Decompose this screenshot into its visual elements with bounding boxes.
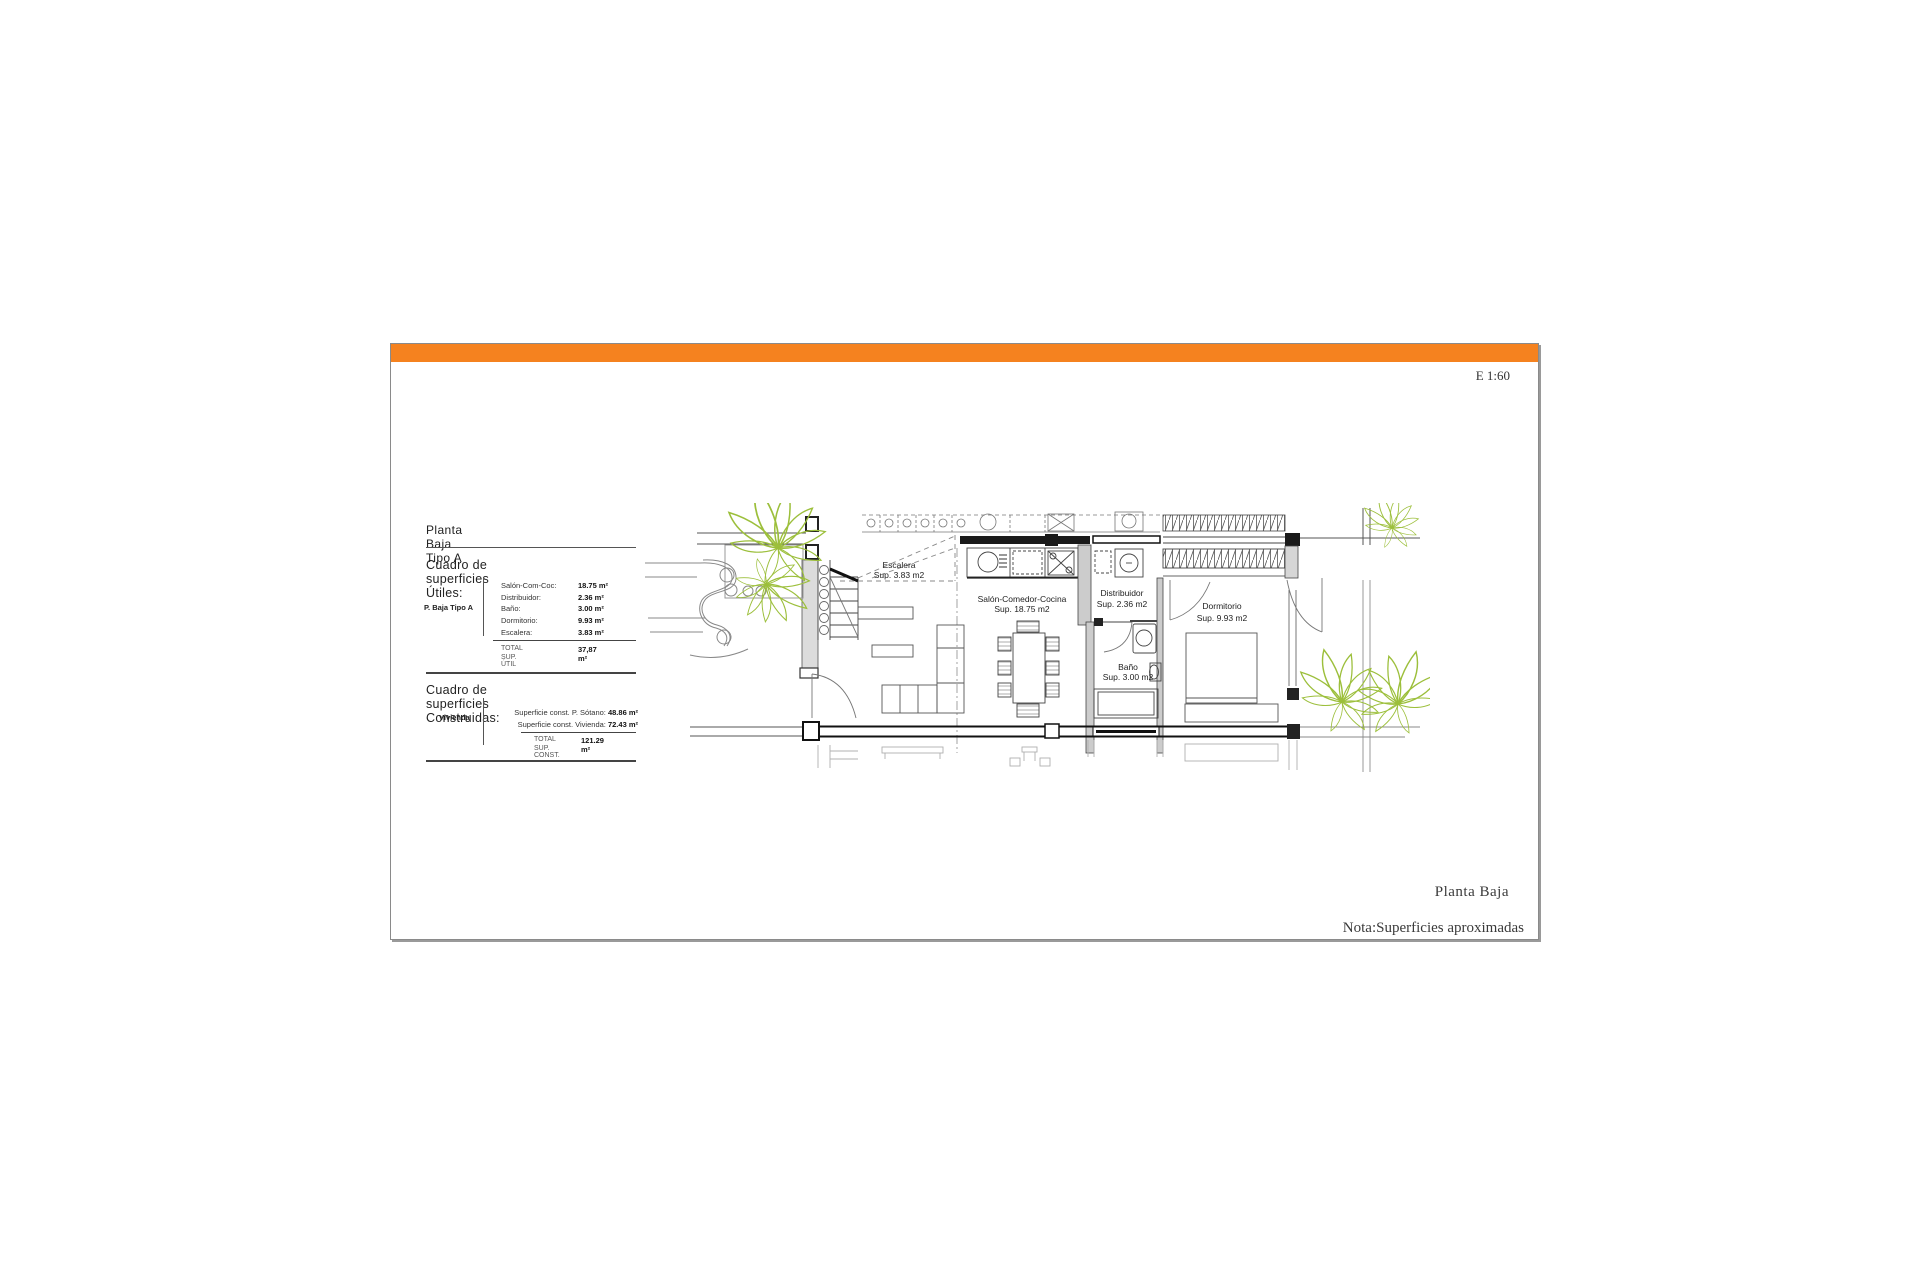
divider — [426, 672, 636, 674]
staircase — [818, 560, 858, 640]
bottom-wall — [690, 722, 1420, 740]
door-swings — [812, 578, 1322, 718]
total-value: 121.29 m² — [581, 736, 604, 754]
room-sup-escalera: Sup. 3.83 m2 — [874, 570, 925, 580]
table-rule — [483, 698, 484, 745]
kitchen-counter — [967, 548, 1285, 578]
bedroom-furniture — [1185, 633, 1278, 722]
table-row: Distribuidor:2.36 m² — [501, 593, 541, 602]
page-canvas: E 1:60 Planta Baja Tipo A Cuadro de supe… — [0, 0, 1920, 1280]
total-rule — [493, 640, 636, 641]
dining-set — [998, 621, 1059, 717]
room-label-escalera: Escalera — [882, 560, 915, 570]
floor-plan-drawing: Escalera Sup. 3.83 m2 Salón-Comedor-Coci… — [640, 503, 1430, 803]
room-sup-salon: Sup. 18.75 m2 — [994, 604, 1050, 614]
table-row: Salón-Com-Coc:18.75 m² — [501, 581, 556, 590]
room-sup-bano: Sup. 3.00 m2 — [1103, 672, 1154, 682]
mirrored-unit-below — [818, 740, 1297, 770]
table-row: Superficie const. P. Sótano: 48.86 m² — [491, 708, 638, 717]
room-label-salon: Salón-Comedor-Cocina — [978, 594, 1067, 604]
total-rule — [521, 732, 636, 733]
total-label: TOTAL — [534, 736, 556, 743]
total-label: TOTAL — [501, 645, 523, 652]
table-row: Superficie const. Vivienda: 72.43 m² — [491, 720, 638, 729]
room-sup-dormitorio: Sup. 9.93 m2 — [1197, 613, 1248, 623]
total-value: 37,87 m² — [578, 645, 597, 663]
table-row: Dormitorio:9.93 m² — [501, 616, 538, 625]
living-room-furniture — [858, 607, 964, 713]
table-rule — [483, 579, 484, 636]
neighbour-unit-band — [862, 512, 1285, 532]
footer-note: Nota:Superficies aproximadas — [1343, 920, 1524, 937]
total-label: SUP. ÚTIL — [501, 654, 516, 668]
orange-header-bar — [391, 344, 1538, 362]
room-label-bano: Baño — [1118, 662, 1138, 672]
scale-label: E 1:60 — [1476, 368, 1510, 384]
table-row: Baño:3.00 m² — [501, 604, 521, 613]
construidas-row-label: Vivienda — [439, 713, 470, 722]
divider — [426, 760, 636, 762]
room-sup-distribuidor: Sup. 2.36 m2 — [1097, 599, 1148, 609]
utiles-heading: Cuadro de superficies Útiles: — [426, 558, 489, 600]
divider — [426, 547, 636, 548]
footer-plan-name: Planta Baja — [1435, 884, 1509, 901]
utiles-row-label: P. Baja Tipo A — [424, 603, 480, 612]
total-label: SUP. CONST. — [534, 745, 560, 759]
room-label-distribuidor: Distribuidor — [1101, 588, 1144, 598]
table-row: Escalera:3.83 m² — [501, 628, 532, 637]
room-label-dormitorio: Dormitorio — [1202, 601, 1241, 611]
